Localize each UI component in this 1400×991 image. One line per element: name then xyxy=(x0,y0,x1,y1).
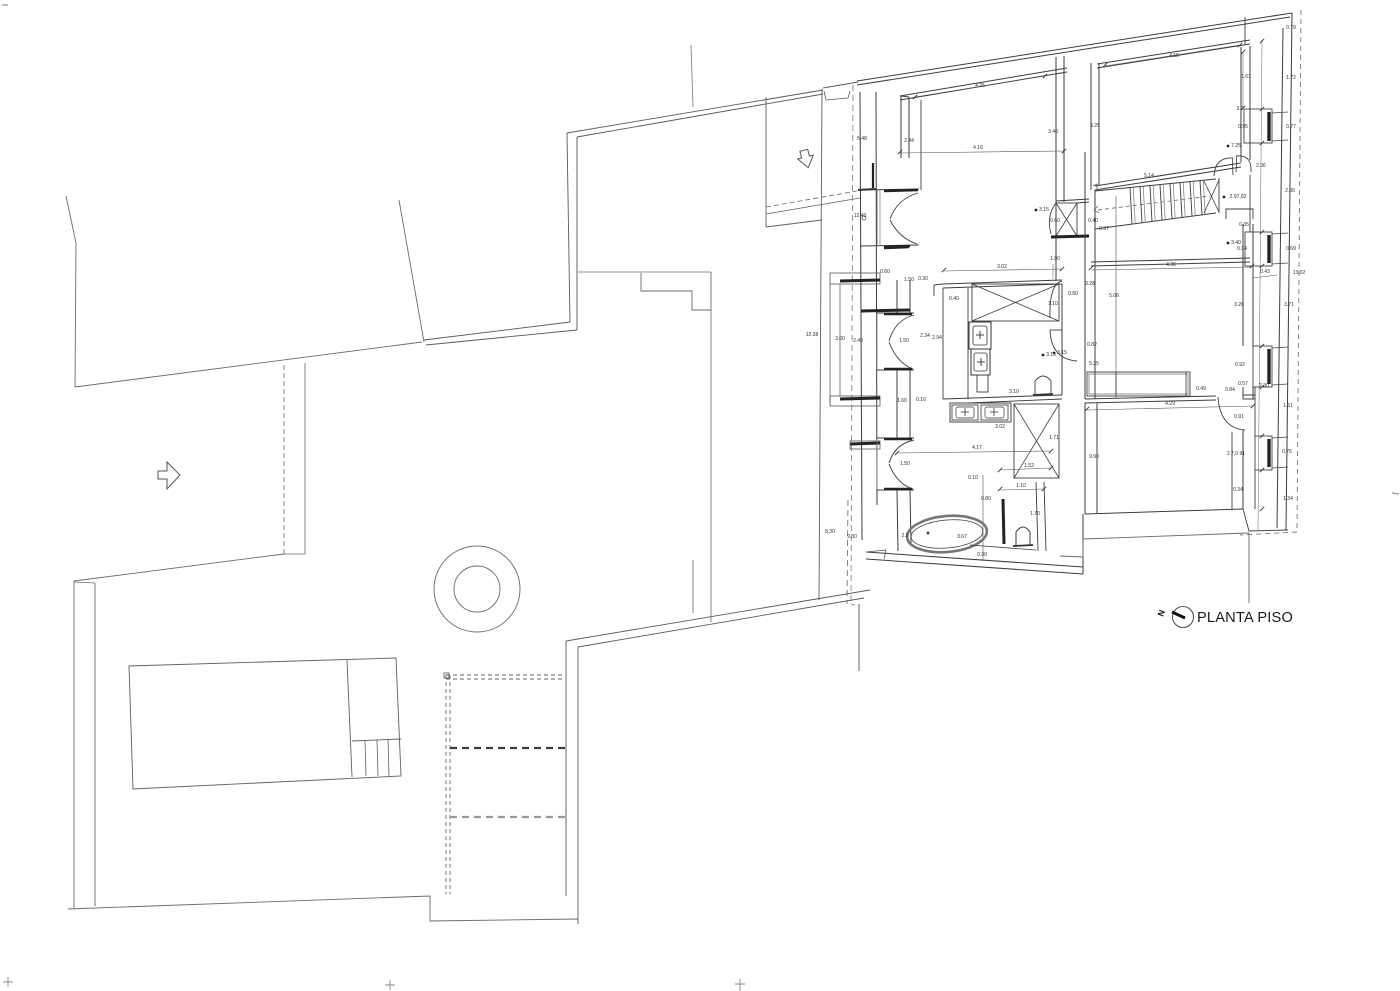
svg-text:0.92: 0.92 xyxy=(1235,362,1245,368)
svg-text:N: N xyxy=(1155,608,1166,617)
svg-text:0.60: 0.60 xyxy=(880,269,890,275)
svg-text:4.29: 4.29 xyxy=(1165,401,1175,407)
svg-text:3.71: 3.71 xyxy=(1284,302,1294,308)
svg-text:0.79: 0.79 xyxy=(1286,25,1296,31)
svg-text:13.02: 13.02 xyxy=(1293,270,1306,276)
svg-text:0.34: 0.34 xyxy=(1233,487,1243,493)
svg-text:9.90: 9.90 xyxy=(1089,454,1099,460)
svg-text:0.10: 0.10 xyxy=(916,397,926,403)
svg-text:0.30: 0.30 xyxy=(918,276,928,282)
svg-text:3.00: 3.00 xyxy=(835,336,845,342)
svg-text:1.00: 1.00 xyxy=(1050,256,1060,262)
svg-text:1.50: 1.50 xyxy=(904,277,914,283)
svg-text:4.17: 4.17 xyxy=(972,445,982,451)
svg-text:0.35: 0.35 xyxy=(1239,222,1249,228)
svg-text:4.36: 4.36 xyxy=(1166,262,1176,268)
svg-text:0.60: 0.60 xyxy=(1050,218,1060,224)
svg-text:1.51: 1.51 xyxy=(1283,403,1293,409)
svg-text:0.76: 0.76 xyxy=(1282,449,1292,455)
svg-text:5.06: 5.06 xyxy=(1109,293,1119,299)
svg-text:3.15: 3.15 xyxy=(1057,350,1067,356)
svg-text:0.69: 0.69 xyxy=(1286,246,1296,252)
svg-text:0.30: 0.30 xyxy=(977,552,987,558)
svg-text:3.26: 3.26 xyxy=(1090,123,1100,129)
svg-text:0.80: 0.80 xyxy=(1068,291,1078,297)
svg-text:PLANTA PISO: PLANTA PISO xyxy=(1197,610,1293,626)
svg-text:2.34: 2.34 xyxy=(920,333,930,339)
svg-text:12.40: 12.40 xyxy=(854,213,867,219)
svg-text:7.25: 7.25 xyxy=(1231,143,1241,149)
svg-text:5.14: 5.14 xyxy=(1144,173,1154,179)
svg-text:2.94: 2.94 xyxy=(932,335,942,341)
svg-text:2.44: 2.44 xyxy=(904,138,914,144)
svg-text:1.71: 1.71 xyxy=(1049,435,1059,441)
svg-text:0.84: 0.84 xyxy=(1225,387,1235,393)
svg-text:0.10: 0.10 xyxy=(968,475,978,481)
svg-text:1.10: 1.10 xyxy=(1016,483,1026,489)
svg-text:2.7,0.91: 2.7,0.91 xyxy=(1227,451,1245,457)
svg-text:2.40: 2.40 xyxy=(853,338,863,344)
svg-text:1.50: 1.50 xyxy=(900,461,910,467)
svg-text:0.91: 0.91 xyxy=(1234,414,1244,420)
svg-text:1.34: 1.34 xyxy=(1283,496,1293,502)
svg-text:1.52: 1.52 xyxy=(1024,463,1034,469)
svg-text:0.40: 0.40 xyxy=(949,296,959,302)
svg-text:3.26: 3.26 xyxy=(1234,302,1244,308)
svg-text:3.28: 3.28 xyxy=(1085,281,1095,287)
svg-text:2.36: 2.36 xyxy=(1285,188,1295,194)
svg-text:4.16: 4.16 xyxy=(973,145,983,151)
svg-text:3.02: 3.02 xyxy=(995,424,1005,430)
svg-text:2.2: 2.2 xyxy=(902,533,909,539)
svg-text:0.43: 0.43 xyxy=(1260,269,1270,275)
svg-text:3.15: 3.15 xyxy=(1039,207,1049,213)
svg-text:1.50: 1.50 xyxy=(899,338,909,344)
svg-text:9.30: 9.30 xyxy=(847,534,857,540)
svg-text:3.40: 3.40 xyxy=(1048,129,1058,135)
svg-text:1.60: 1.60 xyxy=(897,398,907,404)
svg-text:0.95: 0.95 xyxy=(1238,124,1248,130)
svg-text:0.40: 0.40 xyxy=(1088,218,1098,224)
svg-text:1.70: 1.70 xyxy=(1030,511,1040,517)
svg-text:3.02: 3.02 xyxy=(997,264,1007,270)
svg-text:4.15: 4.15 xyxy=(1169,53,1179,59)
svg-text:0.82: 0.82 xyxy=(1087,342,1097,348)
svg-text:1.72: 1.72 xyxy=(1286,75,1296,81)
svg-text:1.10: 1.10 xyxy=(1048,301,1058,307)
svg-text:5.25: 5.25 xyxy=(1089,361,1099,367)
svg-text:3.10: 3.10 xyxy=(1009,389,1019,395)
svg-text:0.77: 0.77 xyxy=(1286,124,1296,130)
svg-text:0.57: 0.57 xyxy=(1238,381,1248,387)
svg-text:5.48: 5.48 xyxy=(857,136,867,142)
svg-text:0.49: 0.49 xyxy=(1196,386,1206,392)
svg-text:0.34: 0.34 xyxy=(1237,246,1247,252)
svg-text:12.38: 12.38 xyxy=(806,332,819,338)
svg-text:3.67: 3.67 xyxy=(957,534,967,540)
svg-text:8.30: 8.30 xyxy=(825,529,835,535)
svg-text:2.97,02: 2.97,02 xyxy=(1230,194,1247,200)
svg-text:0.80: 0.80 xyxy=(981,496,991,502)
